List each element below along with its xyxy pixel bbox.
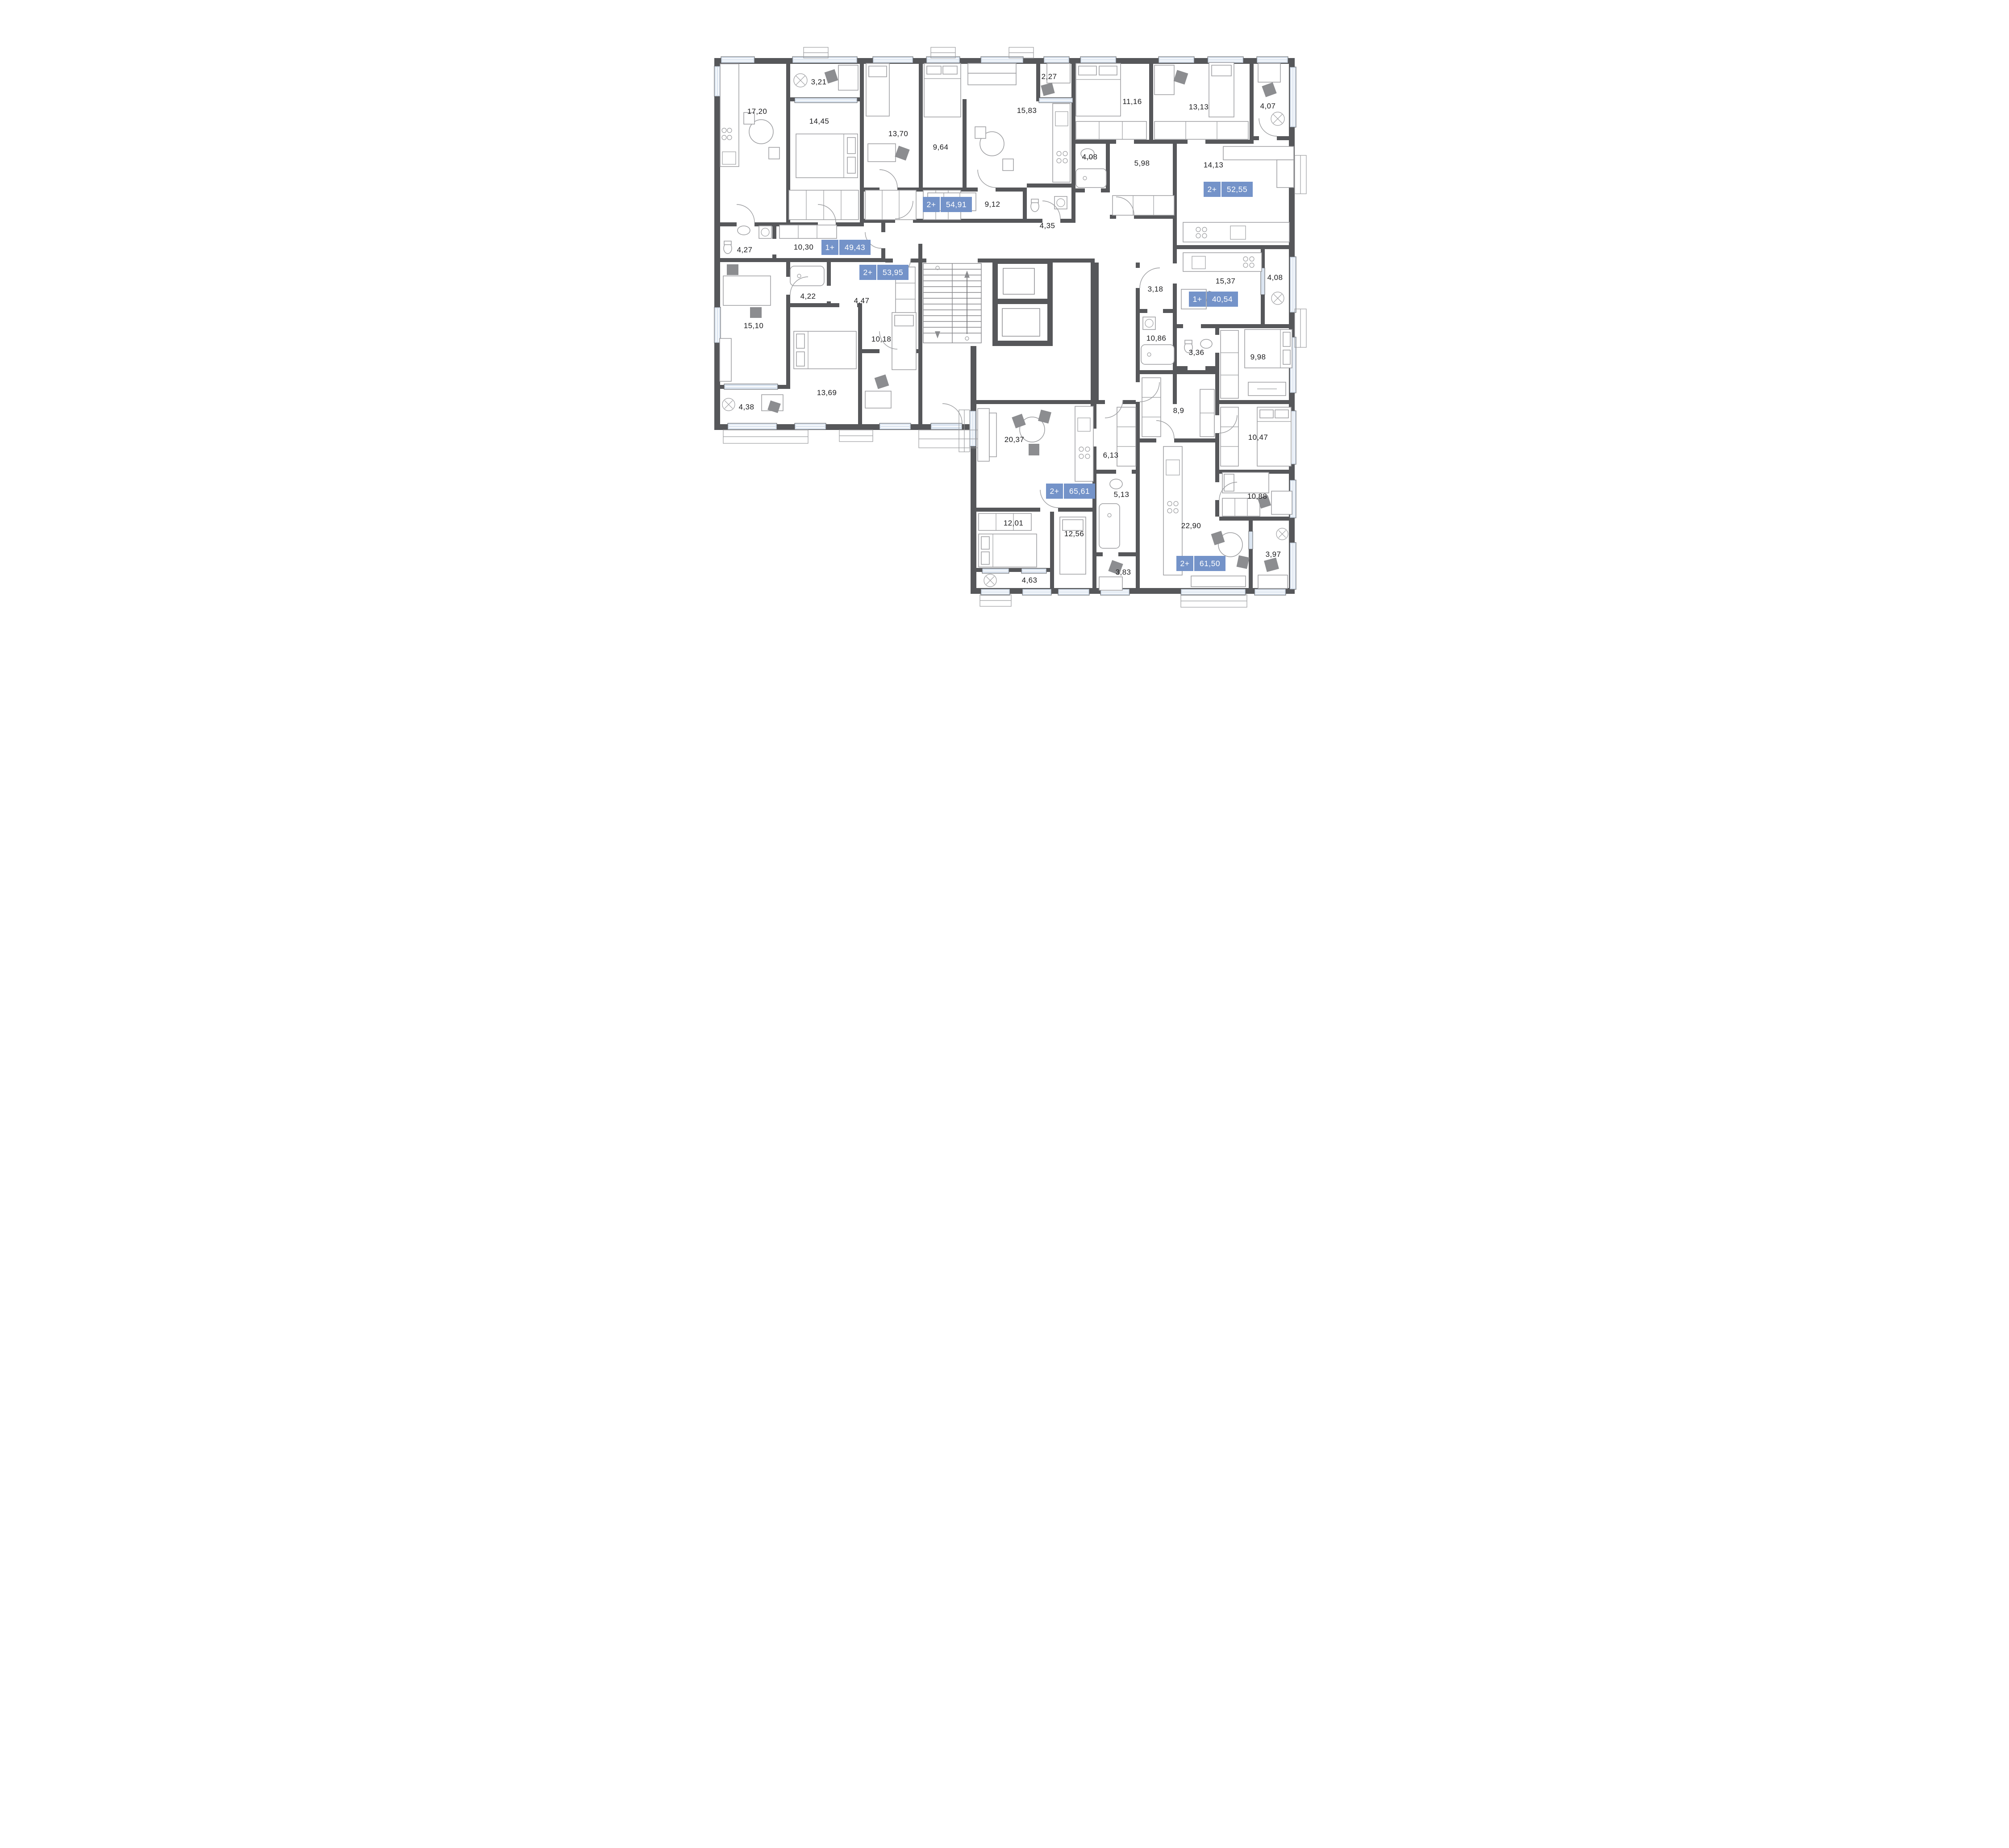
room-area-label: 3,21 bbox=[811, 78, 827, 87]
plant-symbol bbox=[1271, 292, 1284, 305]
room-area-label: 3,97 bbox=[1266, 550, 1281, 559]
wardrobe-symbol bbox=[789, 190, 859, 220]
room-area-label: 3,18 bbox=[1148, 285, 1163, 294]
apartment-area-label: 40,54 bbox=[1207, 292, 1238, 307]
room-area-label: 4,08 bbox=[1267, 273, 1283, 282]
wardrobe-symbol bbox=[1142, 378, 1161, 437]
entrance-door bbox=[931, 423, 962, 430]
room-area-label: 14,45 bbox=[809, 117, 829, 126]
desk-symbol bbox=[762, 395, 783, 413]
apartment-area-label: 54,91 bbox=[941, 197, 972, 212]
room-area-label: 12,01 bbox=[1004, 519, 1024, 528]
toilet-symbol bbox=[724, 241, 732, 254]
apartment-badge-1plus-49-43[interactable]: 1+ 49,43 bbox=[821, 240, 871, 255]
wardrobe-symbol bbox=[865, 190, 916, 220]
washer-symbol bbox=[1143, 317, 1155, 330]
dining-table-symbol bbox=[744, 113, 779, 159]
room-area-label: 3,83 bbox=[1116, 568, 1131, 577]
room-area-label: 11,16 bbox=[1122, 97, 1142, 106]
room-area-label: 4,07 bbox=[1260, 102, 1276, 111]
kitchen-counter-symbol bbox=[1075, 406, 1093, 481]
plant-symbol bbox=[1276, 528, 1288, 540]
room-area-label: 15,10 bbox=[744, 321, 764, 330]
double-bed-symbol bbox=[924, 63, 961, 117]
desk-symbol bbox=[868, 144, 910, 162]
room-area-label: 10,47 bbox=[1248, 433, 1268, 442]
room-area-label: 10,30 bbox=[794, 243, 814, 252]
apartment-area-label: 49,43 bbox=[839, 240, 871, 255]
room-area-label: 13,13 bbox=[1189, 103, 1209, 112]
room-area-label: 6,13 bbox=[1103, 451, 1119, 460]
floor-plan: 17,20 3,21 14,45 13,70 9,64 15,83 2,27 9… bbox=[670, 0, 1339, 616]
room-area-label: 10,18 bbox=[871, 335, 892, 344]
apartment-area-label: 52,55 bbox=[1221, 182, 1253, 197]
bathtub-symbol bbox=[790, 266, 824, 286]
apartment-type-label: 2+ bbox=[1204, 182, 1221, 197]
toilet-symbol bbox=[1031, 199, 1039, 212]
desk-symbol bbox=[1155, 65, 1188, 95]
single-bed-symbol bbox=[866, 63, 889, 116]
apartment-area-label: 53,95 bbox=[877, 265, 909, 280]
sofa-symbol bbox=[978, 409, 996, 461]
staircase bbox=[923, 263, 981, 343]
sofa-symbol bbox=[1191, 576, 1246, 587]
wardrobe-symbol bbox=[1222, 498, 1260, 516]
apartment-type-label: 2+ bbox=[1046, 484, 1063, 499]
wardrobe-symbol bbox=[1117, 407, 1136, 466]
desk-symbol bbox=[1258, 558, 1288, 588]
plant-symbol bbox=[722, 398, 735, 411]
kitchen-counter-symbol bbox=[1183, 253, 1262, 271]
kitchen-counter-symbol bbox=[1183, 222, 1289, 242]
washer-symbol bbox=[759, 226, 771, 238]
room-area-label: 13,70 bbox=[888, 129, 909, 138]
apartment-badge-2plus-54-91[interactable]: 2+ 54,91 bbox=[923, 197, 972, 212]
room-area-label: 3,36 bbox=[1189, 348, 1205, 357]
apartment-type-label: 2+ bbox=[859, 265, 876, 280]
room-area-label: 5,13 bbox=[1114, 490, 1130, 499]
double-bed-symbol bbox=[796, 134, 858, 178]
room-area-label: 9,64 bbox=[933, 143, 949, 152]
kitchen-counter-symbol bbox=[720, 64, 739, 167]
desk-symbol bbox=[825, 65, 858, 90]
apartment-area-label: 65,61 bbox=[1064, 484, 1095, 499]
sink-symbol bbox=[1200, 339, 1212, 348]
bathtub-symbol bbox=[1076, 169, 1106, 188]
bathtub-symbol bbox=[1099, 504, 1120, 548]
plant-symbol bbox=[984, 574, 996, 587]
room-area-label: 8,9 bbox=[1173, 406, 1184, 415]
plant-symbol bbox=[794, 74, 807, 87]
room-area-label: 9,12 bbox=[985, 200, 1000, 209]
washer-symbol bbox=[1055, 196, 1067, 209]
single-bed-symbol bbox=[1060, 517, 1086, 574]
wardrobe-symbol bbox=[1200, 389, 1214, 437]
room-area-label: 4,22 bbox=[800, 292, 816, 301]
apartment-badge-2plus-52-55[interactable]: 2+ 52,55 bbox=[1204, 182, 1253, 197]
dining-table-symbol bbox=[1012, 409, 1051, 455]
room-area-label: 12,56 bbox=[1064, 530, 1084, 538]
plant-symbol bbox=[1271, 112, 1284, 125]
wardrobe-symbol bbox=[1113, 196, 1174, 215]
room-area-label: 2,27 bbox=[1042, 72, 1057, 81]
single-bed-symbol bbox=[892, 313, 916, 370]
apartment-area-label: 61,50 bbox=[1194, 556, 1225, 571]
double-bed-symbol bbox=[1245, 330, 1292, 368]
apartment-type-label: 2+ bbox=[1176, 556, 1193, 571]
room-area-label: 15,83 bbox=[1017, 106, 1037, 115]
room-area-label: 10,88 bbox=[1247, 492, 1267, 501]
elevator-shafts bbox=[992, 259, 1053, 346]
room-area-label: 15,37 bbox=[1216, 277, 1236, 286]
wardrobe-symbol bbox=[1221, 407, 1238, 466]
table-symbol bbox=[723, 264, 771, 318]
apartment-type-label: 1+ bbox=[821, 240, 838, 255]
dresser-symbol bbox=[1248, 382, 1286, 396]
sofa-symbol bbox=[720, 338, 731, 381]
apartment-badge-1plus-40-54[interactable]: 1+ 40,54 bbox=[1189, 292, 1238, 307]
room-area-label: 20,37 bbox=[1004, 435, 1025, 444]
wardrobe-symbol bbox=[779, 225, 837, 238]
single-bed-symbol bbox=[1209, 63, 1234, 117]
room-area-label: 4,38 bbox=[739, 403, 754, 412]
room-area-label: 4,08 bbox=[1082, 153, 1098, 162]
dining-table-symbol bbox=[975, 127, 1013, 171]
apartment-type-label: 1+ bbox=[1189, 292, 1206, 307]
room-area-label: 4,63 bbox=[1022, 576, 1038, 585]
double-bed-symbol bbox=[979, 534, 1037, 567]
room-area-label: 17,20 bbox=[747, 107, 767, 116]
apartment-badge-2plus-53-95[interactable]: 2+ 53,95 bbox=[859, 265, 909, 280]
room-area-label: 14,13 bbox=[1204, 161, 1224, 170]
room-area-label: 10,86 bbox=[1146, 334, 1167, 343]
sink-symbol bbox=[738, 226, 750, 235]
bathtub-symbol bbox=[1141, 345, 1174, 364]
wardrobe-symbol bbox=[1076, 121, 1146, 139]
apartment-badge-2plus-61-50[interactable]: 2+ 61,50 bbox=[1176, 556, 1225, 571]
desk-symbol bbox=[865, 375, 891, 408]
room-area-label: 4,35 bbox=[1040, 221, 1055, 230]
apartment-type-label: 2+ bbox=[923, 197, 940, 212]
room-area-label: 13,69 bbox=[817, 388, 837, 397]
kitchen-counter-symbol bbox=[1053, 104, 1070, 182]
room-area-label: 4,27 bbox=[737, 246, 753, 254]
sofa-symbol bbox=[968, 63, 1016, 85]
double-bed-symbol bbox=[794, 331, 856, 369]
apartment-badge-2plus-65-61[interactable]: 2+ 65,61 bbox=[1046, 484, 1095, 499]
double-bed-symbol bbox=[1076, 63, 1121, 116]
room-area-label: 22,90 bbox=[1181, 521, 1201, 530]
desk-symbol bbox=[1258, 63, 1280, 97]
room-area-label: 9,98 bbox=[1250, 353, 1266, 362]
single-bed-symbol bbox=[1222, 472, 1269, 493]
room-area-label: 5,98 bbox=[1134, 159, 1150, 168]
wardrobe-symbol bbox=[1221, 330, 1238, 398]
room-area-label: 4,47 bbox=[854, 296, 870, 305]
wardrobe-symbol bbox=[1155, 121, 1248, 139]
sink-symbol bbox=[1110, 479, 1122, 489]
